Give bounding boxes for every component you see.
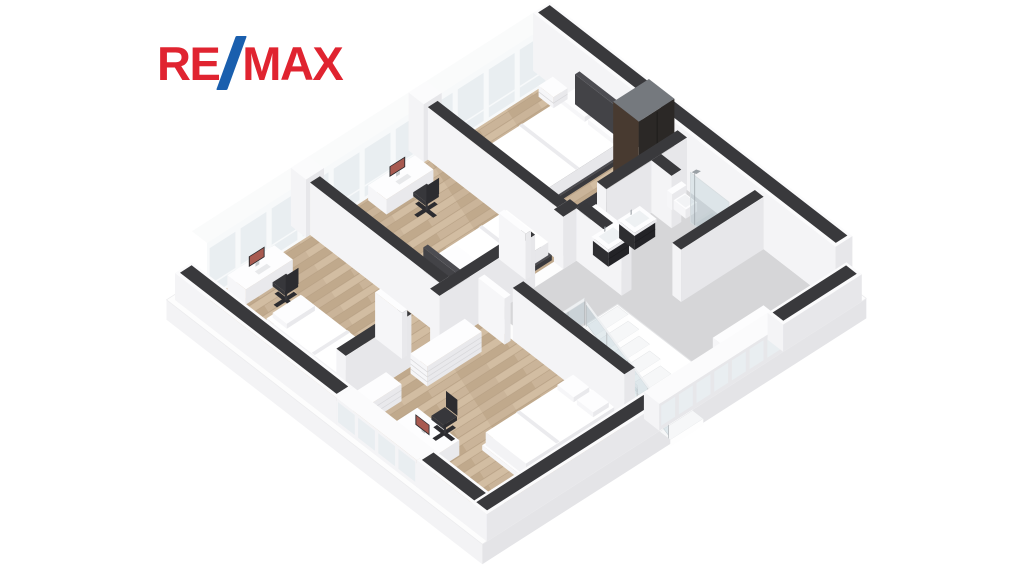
logo-text-re: RE xyxy=(157,40,219,87)
logo-text-max: MAX xyxy=(242,40,342,87)
remax-logo: RE MAX xyxy=(157,36,342,90)
floorplan-3d-render xyxy=(0,0,1024,576)
hall-wall-3 xyxy=(554,199,580,269)
page: RE MAX xyxy=(0,0,1024,576)
